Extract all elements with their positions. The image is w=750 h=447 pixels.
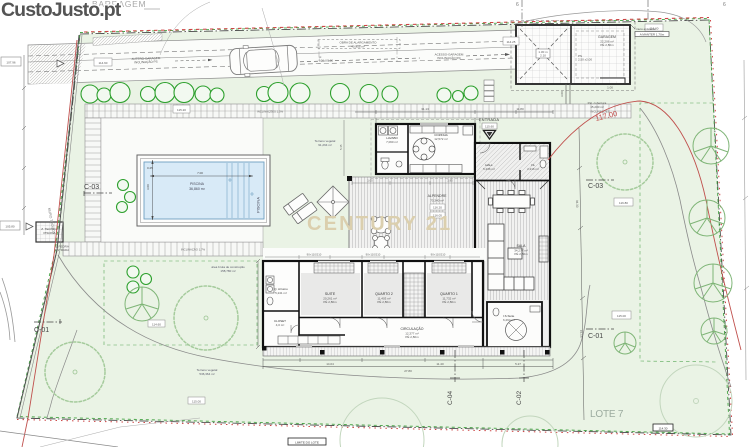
svg-text:3.00: 3.00 <box>146 184 150 190</box>
svg-text:INCLINAÇÕES 1,5%: INCLINAÇÕES 1,5% <box>257 109 284 114</box>
svg-text:CIRCULAÇÃO: CIRCULAÇÃO <box>401 326 424 331</box>
svg-text:158,780 m²: 158,780 m² <box>220 269 235 273</box>
svg-text:CustoJusto.pt: CustoJusto.pt <box>1 0 122 21</box>
svg-text:1.00: 1.00 <box>607 86 613 90</box>
svg-text:QUARTO 2: QUARTO 2 <box>375 292 393 296</box>
svg-text:LIMITE DO LOTE: LIMITE DO LOTE <box>295 441 319 445</box>
svg-text:2,50 x2,00: 2,50 x2,00 <box>578 58 592 62</box>
svg-text:A MANTER 1,70m: A MANTER 1,70m <box>640 33 665 37</box>
svg-text:36,860 m²: 36,860 m² <box>189 187 206 191</box>
svg-text:40,913 m²: 40,913 m² <box>351 44 365 48</box>
svg-text:90+110/210: 90+110/210 <box>366 253 381 257</box>
svg-text:106 US 06: 106 US 06 <box>319 59 334 63</box>
svg-text:C-03: C-03 <box>84 184 99 191</box>
svg-text:107.96: 107.96 <box>6 61 16 65</box>
svg-text:0.25: 0.25 <box>147 166 153 170</box>
svg-text:116.80: 116.80 <box>619 201 628 205</box>
svg-text:5.35: 5.35 <box>339 144 343 150</box>
svg-text:1.05: 1.05 <box>367 179 373 183</box>
svg-text:33.30: 33.30 <box>575 200 579 208</box>
svg-text:7.00: 7.00 <box>197 171 203 175</box>
svg-text:INCLINAÇÃO 6%: INCLINAÇÃO 6% <box>437 55 461 60</box>
svg-text:27.80: 27.80 <box>404 369 412 373</box>
svg-text:PÉ 2,80m: PÉ 2,80m <box>377 299 391 304</box>
svg-text:SALA: SALA <box>517 244 527 248</box>
svg-text:PÉ 2,80m: PÉ 2,80m <box>600 42 614 47</box>
svg-text:105.80: 105.80 <box>5 225 15 229</box>
svg-text:5,241 m²: 5,241 m² <box>275 291 287 295</box>
svg-text:11.80: 11.80 <box>516 107 524 111</box>
svg-text:INCLINAÇÃO 1,7%: INCLINAÇÃO 1,7% <box>181 247 206 252</box>
svg-text:INCLINAÇÃO-PS: INCLINAÇÃO-PS <box>134 59 158 65</box>
svg-text:114.60: 114.60 <box>99 61 108 65</box>
svg-text:C-04: C-04 <box>447 391 454 405</box>
svg-text:C-01: C-01 <box>34 327 49 334</box>
svg-text:6: 6 <box>516 2 519 8</box>
svg-text:14.04: 14.04 <box>326 362 334 366</box>
svg-text:4,0 m²: 4,0 m² <box>276 323 285 327</box>
svg-text:C-02: C-02 <box>516 391 523 405</box>
svg-text:7,060 m²: 7,060 m² <box>386 140 398 144</box>
svg-text:5,236 m²: 5,236 m² <box>483 167 495 171</box>
svg-text:SUITE: SUITE <box>325 292 336 296</box>
svg-text:114.30: 114.30 <box>659 426 668 430</box>
svg-text:114.60: 114.60 <box>152 322 161 326</box>
svg-text:1.85: 1.85 <box>447 179 453 183</box>
svg-text:90+110/210: 90+110/210 <box>307 253 322 257</box>
svg-text:2,216 m²: 2,216 m² <box>527 167 539 171</box>
svg-text:115.00: 115.00 <box>617 314 626 318</box>
svg-text:PÉ 2,80m: PÉ 2,80m <box>323 299 337 304</box>
svg-text:3.00: 3.00 <box>560 91 564 97</box>
svg-text:115.00: 115.00 <box>192 399 201 403</box>
svg-text:6,294 m²: 6,294 m² <box>503 318 515 322</box>
svg-text:PÉ 2,80m: PÉ 2,80m <box>442 299 456 304</box>
svg-text:PISCINA: PISCINA <box>190 182 205 186</box>
svg-text:15,200 m²: 15,200 m² <box>590 105 604 109</box>
svg-text:2.10: 2.10 <box>540 54 546 58</box>
svg-text:ALPENDRE: ALPENDRE <box>428 194 448 198</box>
svg-text:116.20: 116.20 <box>433 206 442 210</box>
svg-text:QUARTO 1: QUARTO 1 <box>440 292 458 296</box>
svg-text:90+110/210: 90+110/210 <box>431 253 446 257</box>
svg-text:5.27: 5.27 <box>515 362 521 366</box>
svg-text:31.13: 31.13 <box>421 107 429 111</box>
svg-text:ENTRADA: ENTRADA <box>479 117 500 122</box>
svg-text:115.60: 115.60 <box>485 125 494 129</box>
svg-text:C-01: C-01 <box>588 333 603 340</box>
svg-text:115.20: 115.20 <box>177 108 186 112</box>
svg-text:15.15: 15.15 <box>579 330 583 338</box>
svg-text:11.40: 11.40 <box>436 362 444 366</box>
svg-text:536,364 m²: 536,364 m² <box>199 372 214 376</box>
svg-text:PÉ 2,80m: PÉ 2,80m <box>405 334 419 339</box>
svg-text:PISCINA: PISCINA <box>256 197 261 213</box>
svg-text:73,340 m²: 73,340 m² <box>430 199 444 203</box>
svg-text:12,572 m²: 12,572 m² <box>434 137 448 141</box>
svg-text:CENTURY 21: CENTURY 21 <box>307 213 452 235</box>
svg-text:114.25: 114.25 <box>507 40 516 44</box>
svg-text:91,264 m²: 91,264 m² <box>318 143 332 147</box>
svg-text:muro existente: muro existente <box>636 27 656 31</box>
svg-text:LOTE 7: LOTE 7 <box>590 409 624 420</box>
svg-text:PÉ 2,80m: PÉ 2,80m <box>514 251 528 256</box>
svg-text:C-03: C-03 <box>588 183 603 190</box>
svg-text:GARAGEM: GARAGEM <box>598 35 616 39</box>
svg-text:6: 6 <box>723 2 726 8</box>
